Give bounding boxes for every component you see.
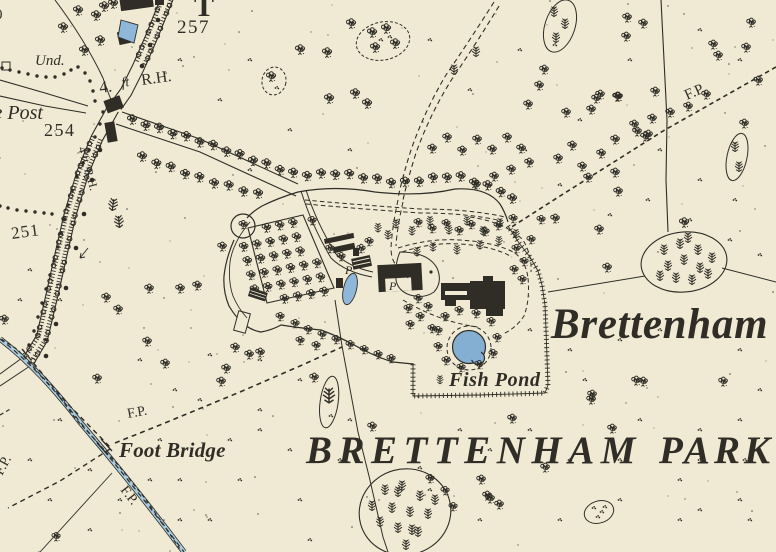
svg-text:le Post: le Post	[0, 102, 43, 124]
svg-text:PARK: PARK	[658, 429, 774, 472]
svg-text:4.: 4.	[98, 76, 113, 97]
svg-text:Fish Pond: Fish Pond	[448, 369, 541, 391]
svg-text:P: P	[344, 263, 353, 277]
svg-text:BRETTENHAM: BRETTENHAM	[305, 429, 642, 472]
svg-text:251: 251	[10, 220, 41, 243]
svg-text:Foot Bridge: Foot Bridge	[118, 438, 226, 462]
svg-text:P: P	[388, 279, 397, 293]
svg-text:0: 0	[0, 7, 3, 23]
svg-text:Und.: Und.	[35, 53, 65, 69]
svg-text:Brettenham: Brettenham	[550, 301, 768, 348]
svg-text:T: T	[194, 0, 214, 23]
svg-text:254: 254	[44, 120, 76, 140]
